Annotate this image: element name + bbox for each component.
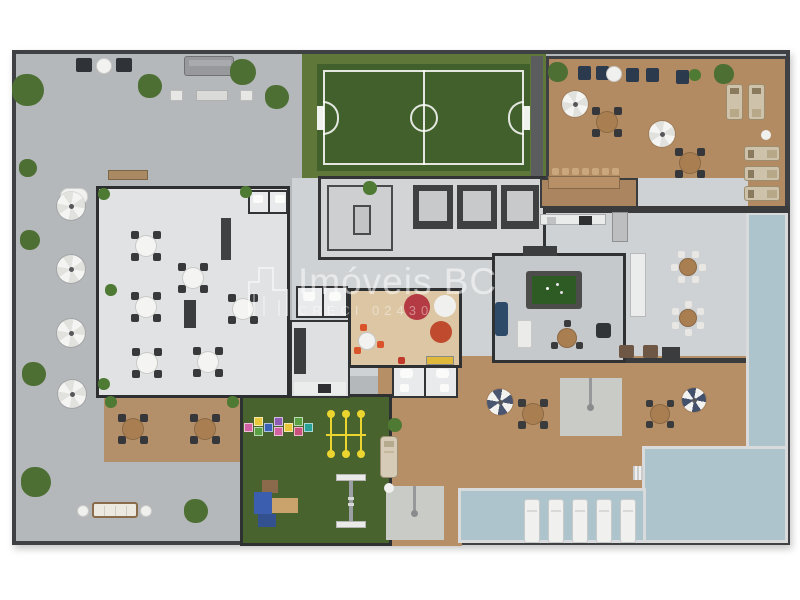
chair [140, 436, 148, 444]
deck-table-top [650, 404, 670, 424]
billiard-table-part [546, 287, 549, 290]
parasol-pole [498, 400, 503, 405]
hopscotch [244, 414, 314, 441]
pool-ladder-part [635, 466, 637, 480]
parasol [649, 121, 675, 147]
seesaw-beam [349, 474, 353, 528]
chair [228, 316, 236, 324]
chair [153, 231, 161, 239]
plant [105, 396, 117, 408]
kitchen-counter-part [547, 217, 556, 224]
bench [108, 170, 148, 180]
chair [697, 322, 704, 329]
chair [360, 324, 367, 331]
party-table-top [135, 235, 157, 257]
play-rug [404, 294, 430, 320]
wc-part [400, 384, 409, 392]
coffee-table [196, 90, 228, 101]
parasol [58, 380, 86, 408]
chair [685, 301, 692, 308]
side-table [662, 347, 680, 361]
chair [212, 414, 220, 422]
parasol [57, 255, 85, 283]
party-kitchen-part [318, 384, 331, 393]
chair [699, 264, 706, 271]
wall-deck-pool [544, 206, 790, 213]
lounger-part [384, 441, 394, 447]
pouf [626, 68, 639, 82]
lounger [380, 436, 398, 478]
elevator [413, 185, 453, 229]
deck-table-top [522, 403, 544, 425]
chair [672, 308, 679, 315]
kitchen-counter [540, 214, 606, 225]
kitchen-island [523, 246, 557, 256]
pool-lounger-part [599, 510, 609, 512]
rug [517, 320, 532, 348]
wc-part [322, 288, 324, 316]
pool-lounger-part [527, 510, 537, 512]
chair [551, 342, 558, 349]
chair [646, 421, 653, 428]
chair [576, 342, 583, 349]
chair [540, 421, 548, 429]
swing-seat [357, 410, 365, 418]
armchair [619, 345, 634, 358]
billiard-table-part [560, 291, 563, 294]
plant [98, 188, 110, 200]
chair [200, 263, 208, 271]
parasol-pole [69, 204, 74, 209]
chair [178, 285, 186, 293]
party-table-top [232, 298, 254, 320]
chair [678, 251, 685, 258]
parasol [57, 192, 85, 220]
hopscotch-tile [304, 423, 313, 432]
pool-ladder-part [639, 466, 641, 480]
deck-bar-part [582, 168, 589, 175]
deck-bar-part [602, 168, 609, 175]
bush [184, 499, 208, 523]
plant [240, 186, 252, 198]
toy-shelf [426, 356, 454, 365]
shade-umbrella [560, 378, 622, 436]
deck-bar-part [552, 168, 559, 175]
armchair [643, 345, 658, 358]
pouf [676, 70, 689, 84]
ottoman [240, 90, 253, 101]
chair [153, 314, 161, 322]
deck-table-top [194, 418, 216, 440]
chair [154, 348, 162, 356]
floor-plan: Imóveis BC CRECI 02430 [0, 0, 800, 600]
playhouse [254, 480, 300, 528]
dining-table-top [679, 258, 697, 276]
toy [398, 357, 405, 364]
kitchenette-part [268, 192, 270, 212]
sun-lounger [744, 146, 780, 161]
hopscotch-tile [264, 423, 273, 432]
pouf [646, 68, 659, 82]
soccer-court [317, 64, 530, 171]
seesaw [336, 474, 366, 528]
chair [697, 170, 705, 178]
sun-lounger-part [767, 150, 777, 158]
fridge [612, 212, 628, 242]
chair [131, 253, 139, 261]
game-table-top [557, 328, 577, 348]
party-table-top [135, 296, 157, 318]
swing-seat [342, 450, 350, 458]
plant [227, 396, 239, 408]
parasol-pole [70, 392, 75, 397]
seesaw-handle [348, 497, 354, 500]
parasol [487, 389, 513, 415]
party-kitchen [290, 320, 350, 398]
chair [118, 436, 126, 444]
armchair [596, 323, 611, 338]
hopscotch-tile [274, 417, 283, 426]
wall-dining-deck [626, 358, 748, 363]
chair [200, 285, 208, 293]
buffet-counter [630, 253, 646, 317]
elevator [457, 185, 497, 229]
hopscotch-tile [284, 423, 293, 432]
wc-part [329, 292, 341, 301]
parasol-pole [69, 331, 74, 336]
playhouse-part [258, 514, 276, 527]
playhouse-part [272, 498, 298, 513]
sofa [184, 56, 234, 76]
chair [614, 129, 622, 137]
hopscotch-tile [294, 417, 303, 426]
deck-table-top [679, 152, 701, 174]
chair [212, 436, 220, 444]
side-table [606, 66, 622, 82]
chair [153, 292, 161, 300]
chair [132, 370, 140, 378]
deck-bar [548, 176, 620, 189]
sun-lounger-part [730, 109, 739, 117]
bush [265, 85, 289, 109]
bush [714, 64, 734, 84]
sun-lounger-part [767, 170, 777, 178]
parasol-pole [69, 267, 74, 272]
pool [746, 212, 788, 450]
parasol [57, 319, 85, 347]
sun-lounger [748, 84, 765, 120]
chair [671, 264, 678, 271]
chair [215, 347, 223, 355]
bar-counter [221, 218, 231, 260]
bench [92, 502, 138, 518]
hopscotch-tile [244, 423, 253, 432]
goal [317, 106, 324, 130]
parasol [682, 388, 706, 412]
hopscotch-tile [274, 427, 283, 436]
bush [22, 362, 46, 386]
elevator-part [507, 191, 533, 221]
party-table-top [197, 351, 219, 373]
parasol-pole [660, 132, 665, 137]
chair [153, 253, 161, 261]
sun-lounger-part [752, 88, 761, 94]
kitchenette-part [253, 195, 263, 203]
sideboard [184, 300, 196, 328]
deck-table-top [122, 418, 144, 440]
sun-lounger-part [752, 109, 761, 117]
chair [592, 129, 600, 137]
chair [154, 370, 162, 378]
deck-table-top [596, 111, 618, 133]
bench-part [115, 506, 116, 516]
pool-ladder [633, 466, 643, 480]
billiard-table-part [532, 276, 576, 304]
chair [646, 400, 653, 407]
goal [523, 106, 530, 130]
court-center-circle [410, 104, 438, 132]
chair [215, 369, 223, 377]
side-table [77, 505, 89, 517]
pool-lounger [596, 499, 612, 543]
hopscotch-tile [294, 427, 303, 436]
pool-lounger [548, 499, 564, 543]
billiard-table-part [556, 283, 559, 286]
sun-lounger-part [748, 170, 754, 178]
kitchen-counter-part [579, 216, 592, 225]
kids-table-top [358, 332, 376, 350]
chair [614, 107, 622, 115]
chair [354, 347, 361, 354]
chair [672, 322, 679, 329]
hopscotch-tile [254, 417, 263, 426]
staircase-part [353, 205, 371, 235]
side-table [140, 505, 152, 517]
party-kitchen-part [294, 328, 306, 374]
chair [377, 341, 384, 348]
deck-bar-part [592, 168, 599, 175]
sun-lounger-part [767, 190, 777, 198]
chair [564, 320, 571, 327]
deck-bar-part [562, 168, 569, 175]
parasol-pole [573, 102, 578, 107]
armchair [116, 58, 132, 72]
dining-table-top [679, 309, 697, 327]
plant [388, 418, 402, 432]
swing-set [326, 410, 366, 460]
swing-seat [327, 450, 335, 458]
swing-bar [326, 434, 366, 436]
sofa [495, 302, 508, 336]
sun-lounger-part [730, 88, 739, 94]
wall-court-deck [531, 56, 543, 180]
bench-part [104, 506, 105, 516]
sun-lounger [744, 186, 780, 201]
chair [685, 329, 692, 336]
bush [548, 62, 568, 82]
play-rug [434, 295, 456, 317]
kitchenette [248, 190, 288, 214]
shade-umbrella-part [411, 510, 418, 517]
plant [363, 181, 377, 195]
pool-lounger-part [575, 510, 585, 512]
elevator-part [419, 191, 447, 221]
side-table [96, 58, 112, 74]
wc [296, 286, 348, 318]
chair [697, 308, 704, 315]
lounger-part [384, 451, 394, 453]
elevator [501, 185, 539, 229]
hopscotch-tile [254, 427, 263, 436]
sun-lounger [744, 166, 780, 181]
bush [21, 467, 51, 497]
chair [250, 294, 258, 302]
bush [12, 74, 44, 106]
chair [518, 421, 526, 429]
chair [692, 276, 699, 283]
shade-umbrella-part [587, 404, 594, 411]
deck-bar-part [612, 168, 619, 175]
chair [250, 316, 258, 324]
armchair [76, 58, 92, 72]
wc-part [424, 364, 426, 396]
plant [105, 284, 117, 296]
play-rug [430, 321, 452, 343]
pouf [578, 66, 591, 80]
playhouse-part [254, 492, 272, 514]
wc-part [303, 292, 315, 301]
bush [230, 59, 256, 85]
wc-part [400, 369, 413, 378]
pool-lounger [620, 499, 636, 543]
wc-part [440, 384, 449, 392]
swing-seat [327, 410, 335, 418]
parasol-pole [692, 398, 697, 403]
chair [697, 148, 705, 156]
chair [675, 170, 683, 178]
sun-lounger [726, 84, 743, 120]
swing-seat [357, 450, 365, 458]
chair [193, 369, 201, 377]
billiard-table [526, 271, 582, 309]
pool [642, 446, 788, 543]
sofa-part [189, 60, 231, 66]
parasol [562, 91, 588, 117]
bush [138, 74, 162, 98]
shade-umbrella [386, 486, 444, 540]
party-room [96, 186, 290, 398]
bush [20, 230, 40, 250]
plant [98, 378, 110, 390]
seesaw-handle [348, 503, 354, 506]
chair [131, 314, 139, 322]
sun-lounger-part [748, 190, 754, 198]
pool-lounger [524, 499, 540, 543]
kitchenette-part [275, 195, 285, 203]
sun-lounger-part [748, 150, 754, 158]
ottoman [170, 90, 183, 101]
seesaw-bar [336, 474, 366, 481]
seesaw-bar [336, 521, 366, 528]
pool-lounger-part [551, 510, 561, 512]
chair [667, 400, 674, 407]
party-table-top [182, 267, 204, 289]
chair [692, 251, 699, 258]
bush [19, 159, 37, 177]
chair [190, 436, 198, 444]
bench-part [126, 506, 127, 516]
wc-part [436, 369, 449, 378]
pool-lounger-part [623, 510, 633, 512]
side-table [761, 130, 771, 140]
chair [540, 399, 548, 407]
chair [678, 276, 685, 283]
deck-bar-part [572, 168, 579, 175]
party-table-top [136, 352, 158, 374]
elevator-part [463, 191, 491, 221]
side-table [384, 483, 394, 493]
chair [667, 421, 674, 428]
swing-seat [342, 410, 350, 418]
chair [140, 414, 148, 422]
plant [689, 69, 701, 81]
pool-lounger [572, 499, 588, 543]
staircase [327, 185, 393, 251]
